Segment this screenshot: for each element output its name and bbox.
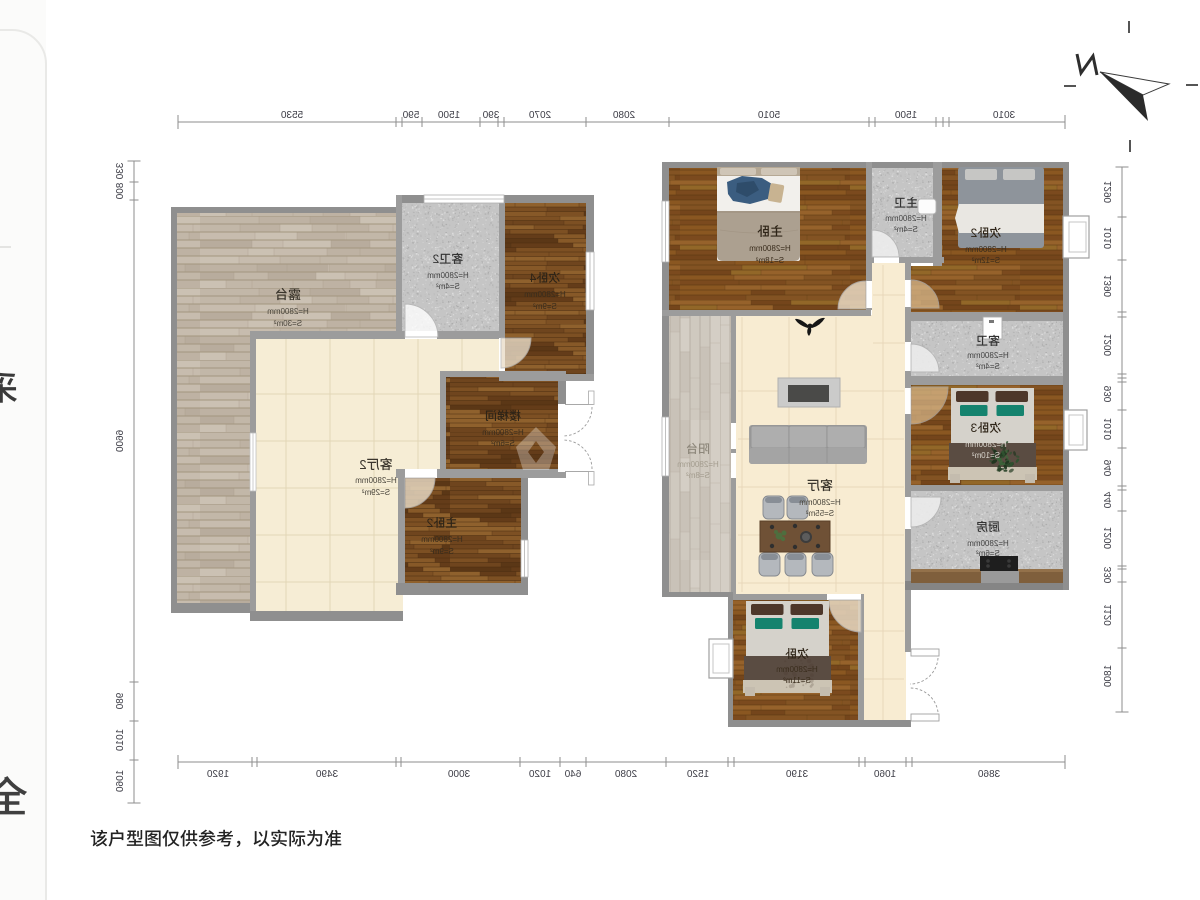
svg-text:440: 440 — [1103, 492, 1114, 509]
svg-text:2080: 2080 — [614, 769, 637, 780]
svg-text:S=30m²: S=30m² — [274, 319, 303, 328]
svg-text:1200: 1200 — [1103, 334, 1114, 357]
svg-text:S=8m²: S=8m² — [686, 471, 710, 480]
svg-text:3000: 3000 — [447, 769, 470, 780]
svg-text:2070: 2070 — [528, 110, 551, 121]
svg-text:S=9m²: S=9m² — [430, 547, 454, 556]
svg-text:1800: 1800 — [1103, 665, 1114, 688]
svg-text:1500: 1500 — [894, 110, 917, 121]
svg-text:S=4m²: S=4m² — [976, 362, 1000, 371]
svg-text:3490: 3490 — [315, 769, 338, 780]
svg-text:H=2800mm: H=2800mm — [677, 460, 719, 469]
svg-text:330: 330 — [1103, 567, 1114, 584]
svg-text:S=55m²: S=55m² — [806, 509, 835, 518]
svg-text:1500: 1500 — [437, 110, 460, 121]
svg-text:940: 940 — [1103, 460, 1114, 477]
svg-text:1010: 1010 — [1103, 418, 1114, 441]
svg-text:1060: 1060 — [873, 769, 896, 780]
svg-text:4: 4 — [529, 271, 536, 285]
svg-text:H=2800mm: H=2800mm — [749, 244, 791, 253]
svg-text:800: 800 — [115, 183, 126, 200]
svg-text:1120: 1120 — [1103, 604, 1114, 626]
svg-text:1200: 1200 — [1103, 527, 1114, 550]
svg-text:H=2800mm: H=2800mm — [965, 440, 1007, 449]
svg-text:H=2800mm: H=2800mm — [776, 665, 818, 674]
svg-text:5530: 5530 — [280, 110, 303, 121]
svg-text:H=2800mm: H=2800mm — [965, 245, 1007, 254]
svg-text:640: 640 — [564, 769, 581, 780]
svg-text:6600: 6600 — [115, 430, 126, 453]
svg-text:1010: 1010 — [1103, 227, 1114, 250]
svg-text:3010: 3010 — [992, 110, 1015, 121]
svg-text:H=2800mm: H=2800mm — [967, 539, 1009, 548]
svg-text:5010: 5010 — [757, 110, 780, 121]
svg-text:H=2800mm: H=2800mm — [267, 307, 309, 316]
svg-text:3860: 3860 — [977, 769, 1000, 780]
svg-text:3190: 3190 — [785, 769, 808, 780]
svg-text:2: 2 — [359, 457, 366, 472]
svg-text:H=2800mm: H=2800mm — [799, 498, 841, 507]
svg-text:1010: 1010 — [115, 729, 126, 752]
svg-text:S=9m²: S=9m² — [533, 302, 557, 311]
svg-text:H=2800mm: H=2800mm — [355, 476, 397, 485]
svg-text:S=6m²: S=6m² — [491, 439, 515, 448]
svg-text:H=2800mm: H=2800mm — [967, 351, 1009, 360]
svg-text:2: 2 — [426, 516, 433, 530]
svg-text:3: 3 — [970, 421, 977, 435]
svg-text:980: 980 — [115, 693, 126, 710]
svg-text:S=4m²: S=4m² — [894, 225, 918, 234]
svg-text:H=2800mm: H=2800mm — [421, 535, 463, 544]
svg-text:H=2800mm: H=2800mm — [482, 428, 524, 437]
svg-text:1920: 1920 — [206, 769, 229, 780]
svg-text:S=6m²: S=6m² — [976, 549, 1000, 558]
svg-text:S=4m²: S=4m² — [436, 282, 460, 291]
svg-text:S=10m²: S=10m² — [972, 451, 1001, 460]
svg-text:H=2800mm: H=2800mm — [885, 214, 927, 223]
svg-text:2: 2 — [432, 252, 439, 266]
svg-text:930: 930 — [1103, 386, 1114, 403]
svg-text:1290: 1290 — [1103, 181, 1114, 204]
svg-text:1390: 1390 — [1103, 275, 1114, 298]
svg-text:H=2800mm: H=2800mm — [524, 290, 566, 299]
svg-text:2: 2 — [970, 226, 977, 240]
svg-text:590: 590 — [402, 110, 419, 121]
svg-text:S=12m²: S=12m² — [972, 256, 1001, 265]
svg-text:S=11m²: S=11m² — [783, 676, 811, 685]
svg-text:390: 390 — [482, 110, 499, 121]
svg-text:1060: 1060 — [115, 770, 126, 793]
svg-text:2080: 2080 — [612, 110, 635, 121]
svg-text:1020: 1020 — [528, 769, 551, 780]
svg-text:1520: 1520 — [686, 769, 709, 780]
svg-text:S=29m²: S=29m² — [362, 488, 391, 497]
svg-text:330: 330 — [115, 163, 126, 180]
svg-text:H=2800mm: H=2800mm — [427, 271, 469, 280]
svg-text:S=18m²: S=18m² — [756, 256, 785, 265]
